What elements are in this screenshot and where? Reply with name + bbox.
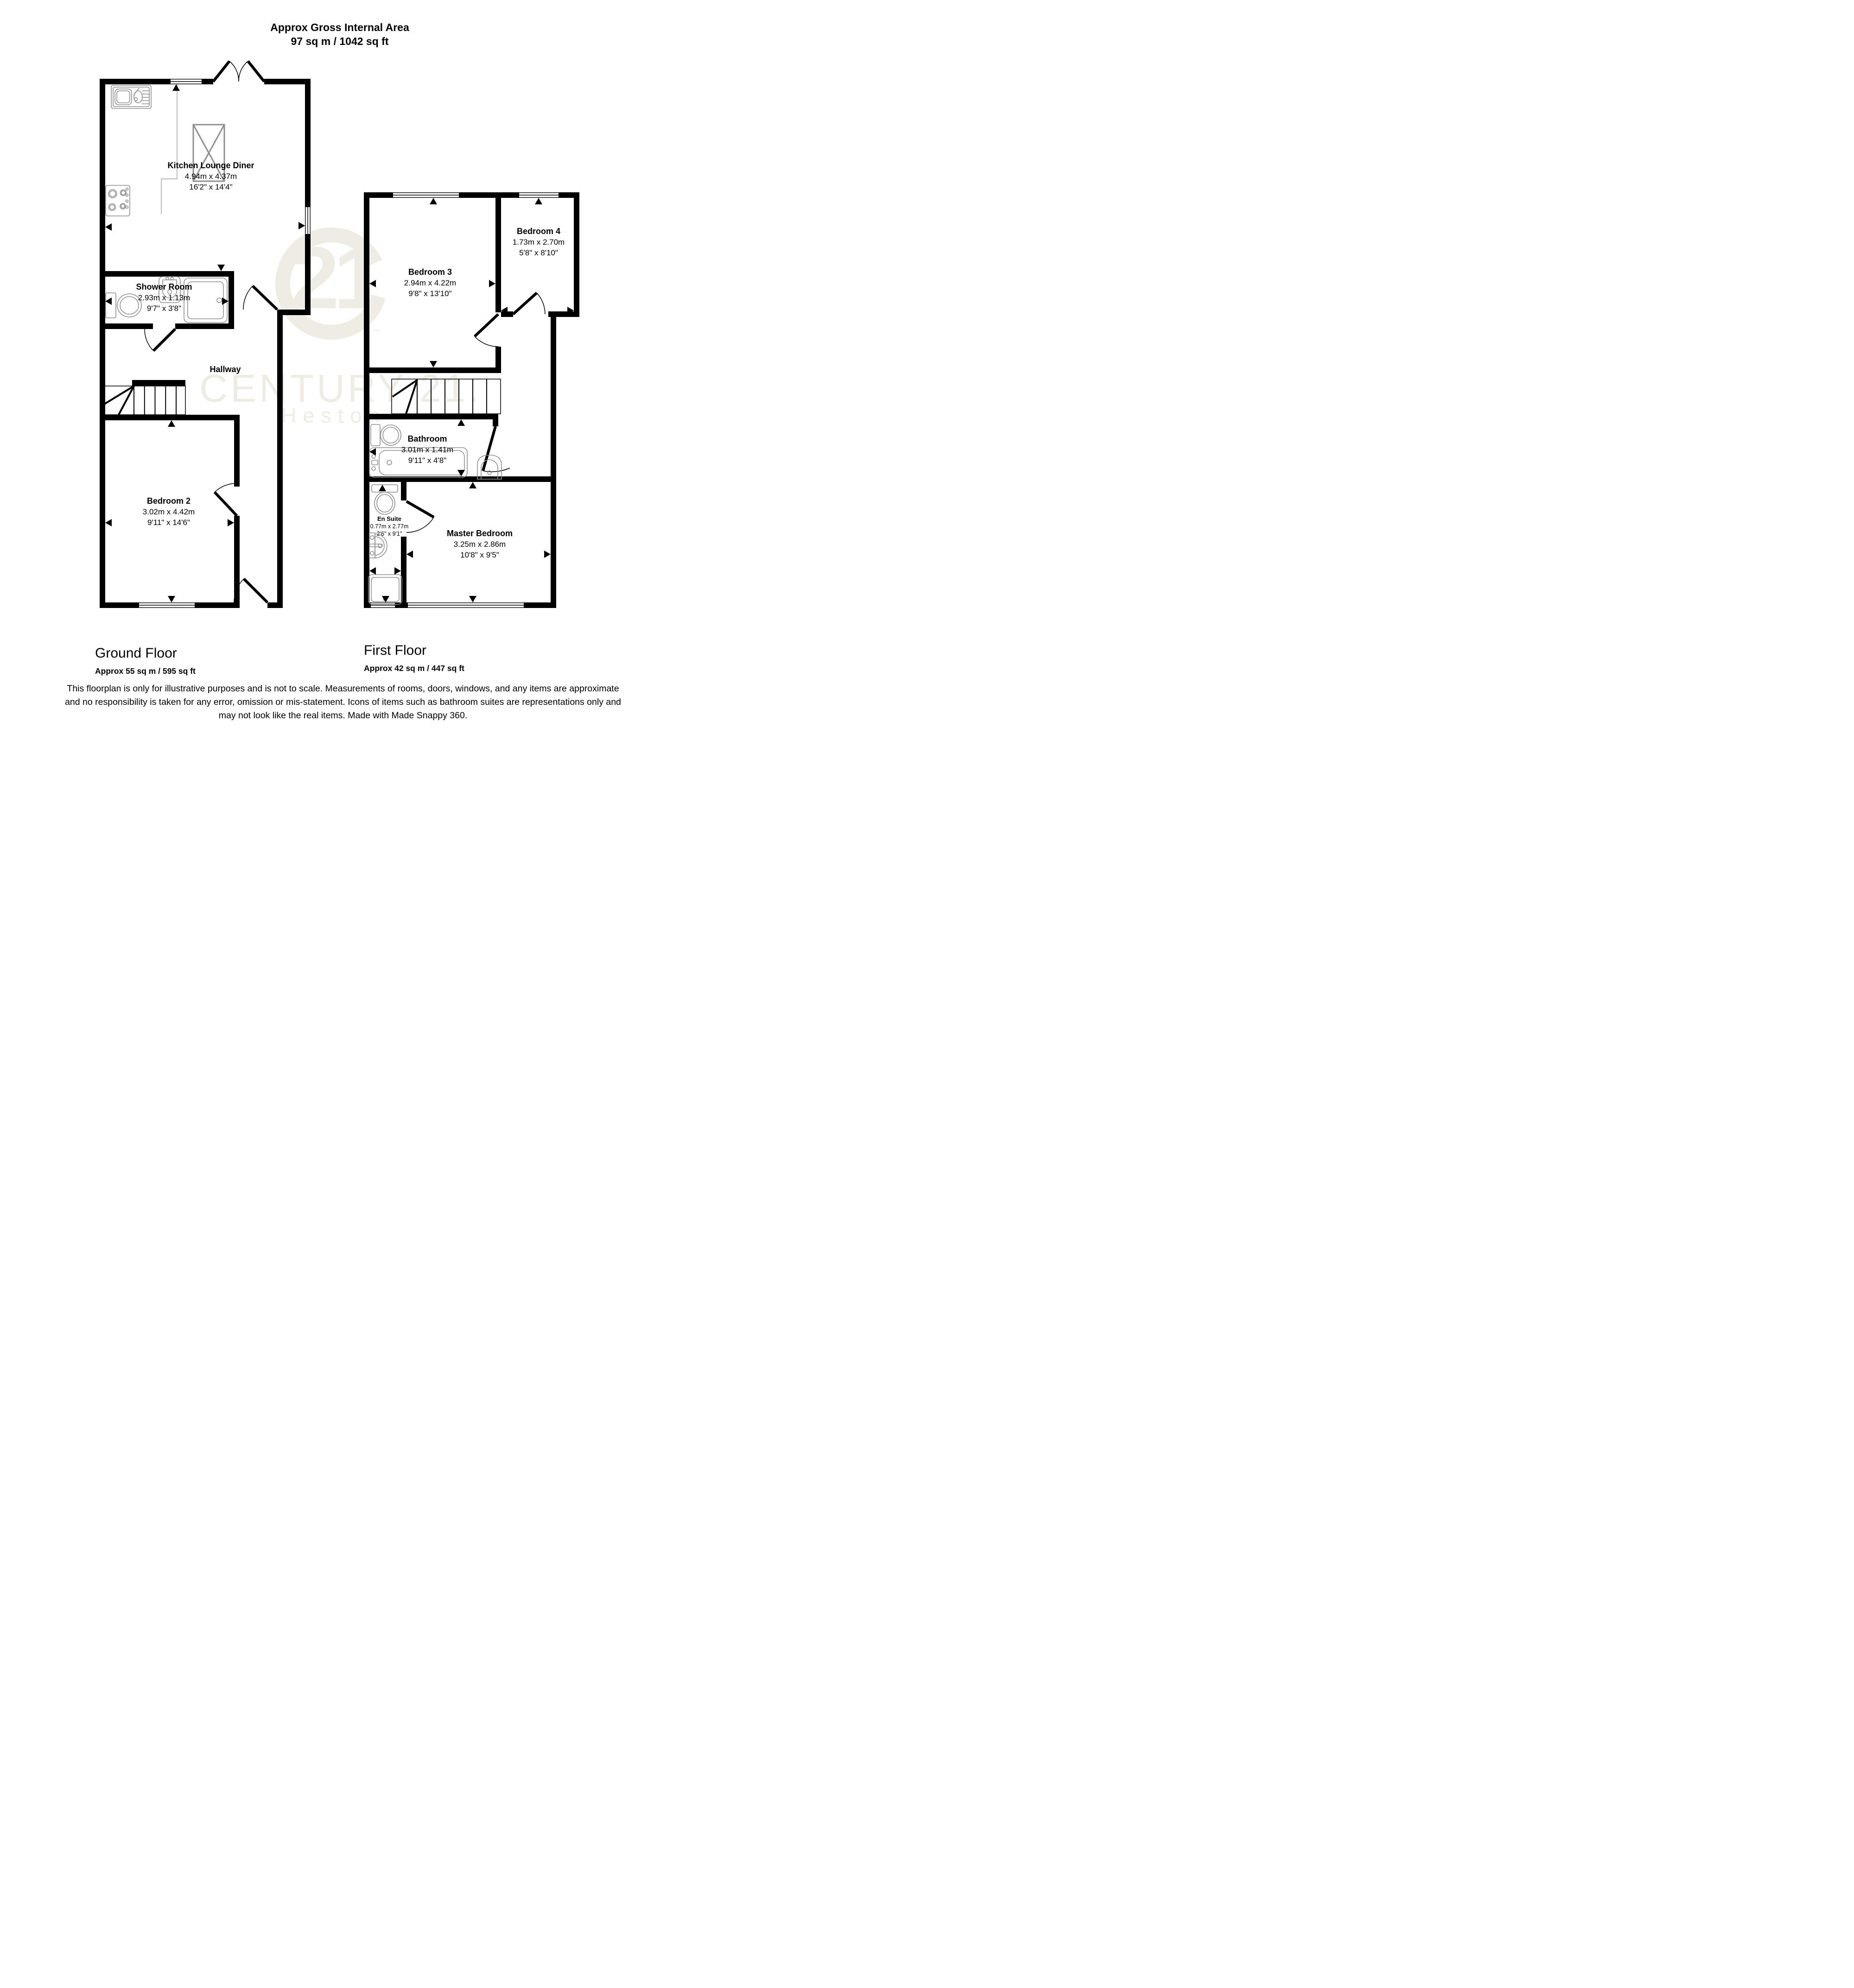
room-name: Hallway (210, 364, 241, 375)
dimension-arrow-icon (222, 298, 229, 305)
doors (145, 61, 545, 602)
dimension-arrow-icon (168, 420, 175, 427)
door-icon (513, 293, 545, 314)
room-label-bedroom-4: Bedroom 4 1.73m x 2.70m 5'8" x 8'10" (513, 226, 565, 258)
room-imperial-dimensions: 9'11" x 14'6" (143, 517, 195, 528)
room-imperial-dimensions: 2'6" x 9'1" (370, 530, 409, 538)
door-icon (406, 501, 434, 532)
dimension-arrow-icon (217, 265, 225, 271)
dimension-arrow-icon (457, 470, 465, 476)
window-icon (393, 192, 459, 198)
floorplan-drawing (0, 0, 686, 736)
disclaimer-line: This floorplan is only for illustrative … (0, 682, 686, 696)
kitchen-counter-line (161, 84, 177, 214)
room-label-bedroom-3: Bedroom 3 2.94m x 4.22m 9'8" x 13'10" (404, 267, 456, 299)
room-metric-dimensions: 3.01m x 1.41m (401, 444, 453, 455)
dimension-arrow-icon (369, 567, 376, 575)
room-name: Bedroom 3 (404, 267, 456, 278)
dimension-arrow-icon (172, 84, 180, 91)
room-imperial-dimensions: 9'8" x 13'10" (404, 288, 456, 299)
room-label-kitchen-lounge-diner: Kitchen Lounge Diner 4.94m x 4.37m 16'2"… (167, 160, 254, 192)
room-imperial-dimensions: 5'8" x 8'10" (513, 247, 565, 258)
hob-icon (106, 185, 130, 216)
dimension-arrow-icon (228, 519, 234, 526)
door-icon (483, 426, 510, 472)
dimension-arrow-icon (430, 361, 437, 367)
door-icon (243, 286, 277, 310)
floor-area: Approx 55 sq m / 595 sq ft (95, 665, 196, 677)
room-name: Shower Room (136, 282, 192, 292)
double-door-icon (213, 61, 264, 82)
dimension-arrow-icon (469, 596, 476, 602)
room-name: Bathroom (401, 434, 453, 444)
door-icon (145, 329, 175, 351)
dimension-arrow-icon (535, 198, 542, 204)
room-imperial-dimensions: 10'8" x 9'5" (447, 550, 513, 560)
title-line: Approx Gross Internal Area (201, 20, 479, 34)
room-metric-dimensions: 0.77m x 2.77m (370, 523, 409, 530)
room-metric-dimensions: 4.94m x 4.37m (167, 171, 254, 182)
ground-floor-walls (100, 79, 311, 608)
dimension-arrow-icon (168, 596, 175, 602)
basin-icon (477, 455, 502, 479)
room-metric-dimensions: 3.02m x 4.42m (143, 506, 195, 517)
disclaimer-line: and no responsibility is taken for any e… (0, 696, 686, 709)
room-imperial-dimensions: 9'7" x 3'8" (136, 303, 192, 314)
room-label-en-suite: En Suite 0.77m x 2.77m 2'6" x 9'1" (370, 515, 409, 538)
dimension-arrow-icon (379, 485, 386, 491)
room-name: Master Bedroom (447, 528, 513, 539)
dimension-arrow-icon (369, 280, 376, 287)
dimension-arrow-icon (430, 198, 437, 204)
toilet-icon (371, 424, 401, 446)
window-icon (305, 207, 311, 234)
window-icon (408, 602, 524, 608)
room-label-master-bedroom: Master Bedroom 3.25m x 2.86m 10'8" x 9'5… (447, 528, 513, 560)
dimension-arrow-icon (406, 551, 413, 558)
dimension-arrow-icon (489, 280, 495, 287)
room-metric-dimensions: 3.25m x 2.86m (447, 539, 513, 550)
floor-name: First Floor (364, 642, 464, 659)
kitchen-sink-icon (111, 85, 151, 108)
dimension-arrow-icon (544, 551, 551, 558)
room-label-bedroom-2: Bedroom 2 3.02m x 4.42m 9'11" x 14'6" (143, 496, 195, 528)
room-metric-dimensions: 2.93m x 1.13m (136, 292, 192, 303)
dimension-arrow-icon (469, 482, 476, 488)
disclaimer-line: may not look like the real items. Made w… (0, 709, 686, 722)
room-name: En Suite (370, 515, 409, 523)
dimension-arrow-icon (457, 419, 465, 426)
room-imperial-dimensions: 16'2" x 14'4" (167, 182, 254, 192)
window-icon (519, 192, 559, 198)
room-name: Bedroom 4 (513, 226, 565, 237)
room-label-shower-room: Shower Room 2.93m x 1.13m 9'7" x 3'8" (136, 282, 192, 314)
window-icon (171, 79, 202, 84)
stairs-ground-floor (103, 386, 185, 415)
title-area-value: 97 sq m / 1042 sq ft (201, 34, 479, 48)
door-icon (475, 314, 498, 347)
dimension-arrow-icon (298, 222, 305, 229)
floor-area: Approx 42 sq m / 447 sq ft (364, 663, 464, 674)
room-name: Kitchen Lounge Diner (167, 160, 254, 171)
room-metric-dimensions: 2.94m x 4.22m (404, 278, 456, 288)
dimension-arrow-icon (394, 567, 401, 575)
dimension-arrow-icon (105, 298, 112, 305)
room-metric-dimensions: 1.73m x 2.70m (513, 237, 565, 247)
door-icon (215, 483, 237, 516)
dimension-arrow-icon (105, 223, 112, 231)
window-icon (371, 602, 395, 608)
window-icon (139, 602, 195, 608)
gross-internal-area-title: Approx Gross Internal Area 97 sq m / 104… (201, 20, 479, 48)
room-imperial-dimensions: 9'11" x 4'8" (401, 455, 453, 466)
floorplan-page: 21 ™ CENTURY 21. Heston Approx Gross Int… (0, 0, 686, 736)
room-name: Bedroom 2 (143, 496, 195, 506)
stairs-first-floor (392, 379, 501, 414)
floor-name: Ground Floor (95, 645, 196, 662)
first-floor-label: First Floor Approx 42 sq m / 447 sq ft (364, 642, 464, 674)
room-label-bathroom: Bathroom 3.01m x 1.41m 9'11" x 4'8" (401, 434, 453, 466)
disclaimer-text: This floorplan is only for illustrative … (0, 682, 686, 722)
dimension-arrow-icon (105, 519, 112, 526)
room-label-hallway: Hallway (210, 364, 241, 375)
ground-floor-label: Ground Floor Approx 55 sq m / 595 sq ft (95, 645, 196, 677)
